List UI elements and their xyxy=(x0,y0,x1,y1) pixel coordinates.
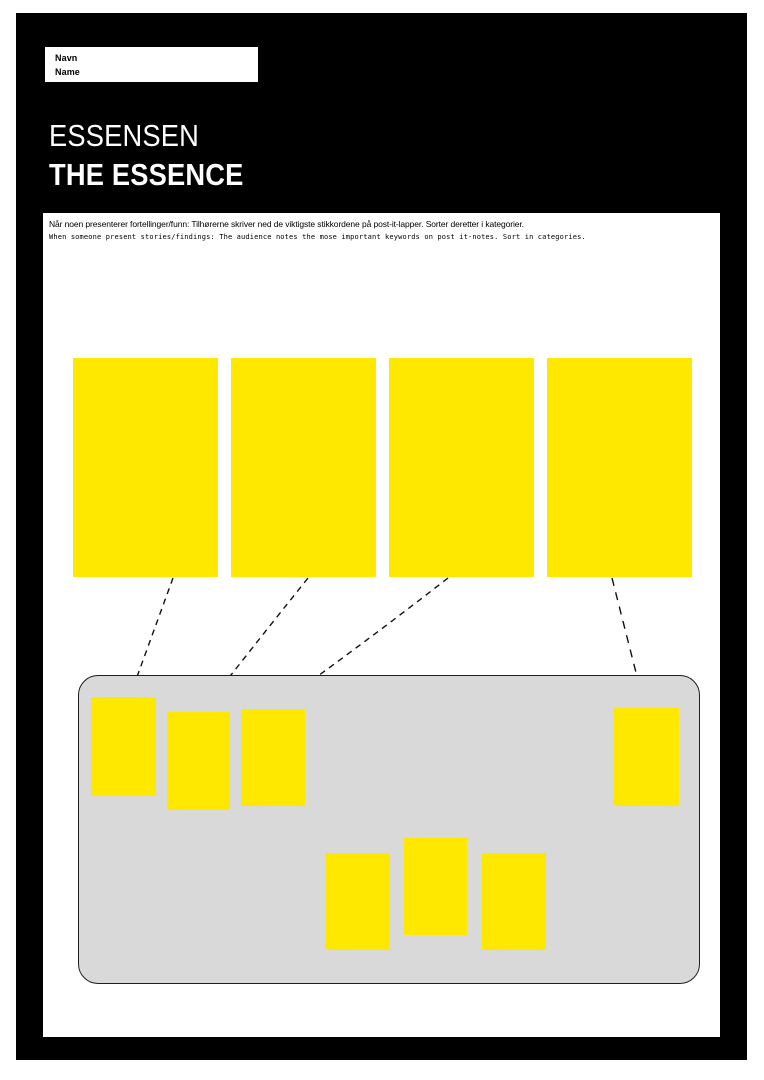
title-english: THE ESSENCE xyxy=(49,155,243,194)
small-post-it-note-6[interactable] xyxy=(404,838,467,935)
black-poster-background: Navn Name ESSENSEN THE ESSENCE Når noen … xyxy=(16,13,747,1060)
worksheet-page: Når noen presenterer fortellinger/funn: … xyxy=(43,213,720,1037)
worksheet-canvas: Navn Name ESSENSEN THE ESSENCE Når noen … xyxy=(0,0,764,1080)
large-post-it-note-1[interactable] xyxy=(73,358,218,577)
small-post-it-note-5[interactable] xyxy=(326,853,390,950)
large-post-it-note-3[interactable] xyxy=(389,358,534,577)
instruction-text-english: When someone present stories/findings: T… xyxy=(49,231,669,244)
title-norwegian: ESSENSEN xyxy=(49,116,243,155)
page-title: ESSENSEN THE ESSENCE xyxy=(49,116,270,194)
small-post-it-note-7[interactable] xyxy=(482,853,546,950)
small-post-it-note-2[interactable] xyxy=(167,712,230,810)
name-label-norwegian: Navn xyxy=(55,51,258,65)
small-post-it-note-1[interactable] xyxy=(91,697,156,796)
name-field[interactable]: Navn Name xyxy=(45,47,258,82)
instruction-text-norwegian: Når noen presenterer fortellinger/funn: … xyxy=(49,217,669,231)
large-post-it-note-2[interactable] xyxy=(231,358,376,577)
small-post-it-note-3[interactable] xyxy=(241,709,305,806)
name-label-english: Name xyxy=(55,65,258,79)
large-post-it-note-4[interactable] xyxy=(547,358,692,577)
instructions: Når noen presenterer fortellinger/funn: … xyxy=(49,217,669,244)
small-post-it-note-4[interactable] xyxy=(614,708,679,806)
